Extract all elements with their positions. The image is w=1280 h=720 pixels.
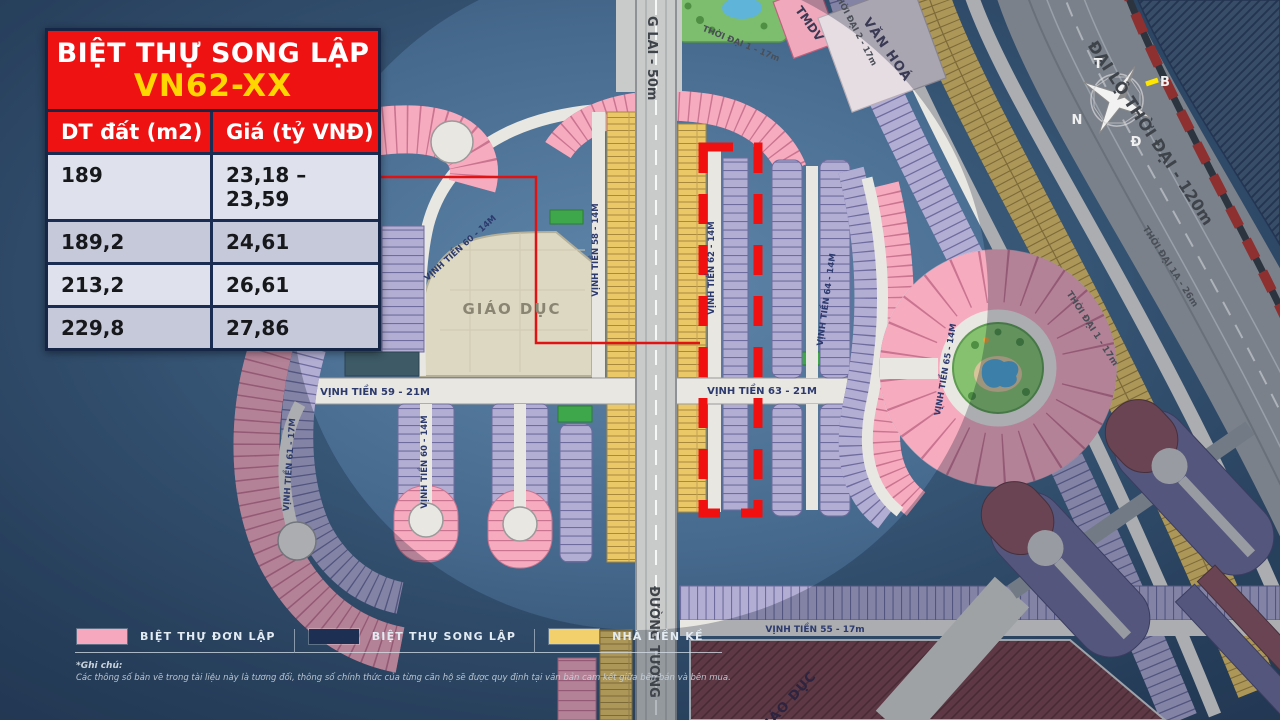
street-vt65-entrance — [880, 358, 938, 379]
footnote-title: *Ghi chú: — [76, 661, 731, 671]
area-value: 213,2 — [48, 265, 213, 305]
price-value: 26,61 — [213, 265, 378, 305]
utility-block — [345, 352, 419, 376]
area-value: 229,8 — [48, 308, 213, 348]
legend-swatch-townhouse — [549, 629, 599, 644]
label-education: GIÁO DỤC — [462, 299, 561, 318]
col-header-price: Giá (tỷ VNĐ) — [213, 112, 378, 152]
area-value: 189 — [48, 155, 213, 219]
price-value: 23,18 – 23,59 — [213, 155, 378, 219]
label-future-road-top: G LAI - 50m — [644, 16, 659, 100]
table-row: 213,2 26,61 — [48, 265, 378, 308]
masterplan-screenshot: GIÁO DỤC GIÁO DỤC VĂN HOÁ TMDV VỊNH TIỀN… — [0, 0, 1280, 720]
compass-label-b: B — [1160, 75, 1170, 90]
vt62-lot-strip — [723, 158, 748, 378]
culdesac-vt61-loop — [431, 121, 473, 163]
price-panel-title: BIỆT THỰ SONG LẬP VN62-XX — [48, 31, 378, 112]
compass-label-d: Đ — [1131, 135, 1142, 150]
legend-label: BIỆT THỰ SONG LẬP — [372, 630, 516, 643]
legend-item-villa-single: BIỆT THỰ ĐƠN LẬP — [75, 629, 294, 653]
price-panel: BIỆT THỰ SONG LẬP VN62-XX DT đất (m2) Gi… — [45, 28, 381, 351]
table-row: 189 23,18 – 23,59 — [48, 155, 378, 222]
col-header-area: DT đất (m2) — [48, 112, 213, 152]
townhouse-strip-left — [607, 112, 638, 378]
legend-label: NHÀ LIỀN KỀ — [612, 630, 704, 643]
label-road-vt59: VỊNH TIỀN 59 - 21M — [320, 384, 430, 398]
price-table-header: DT đất (m2) Giá (tỷ VNĐ) — [48, 112, 378, 155]
label-road-vt63: VỊNH TIỀN 63 - 21M — [707, 383, 817, 397]
compass-label-n: N — [1072, 113, 1083, 128]
legend-item-townhouse: NHÀ LIỀN KỀ — [534, 629, 722, 653]
product-code: VN62-XX — [52, 69, 374, 103]
footnote: *Ghi chú: Các thông số bản vẽ trong tài … — [76, 661, 731, 683]
legend-item-villa-semi: BIỆT THỰ SONG LẬP — [294, 629, 534, 653]
compass-label-t: T — [1094, 57, 1103, 72]
area-value: 189,2 — [48, 222, 213, 262]
price-value: 24,61 — [213, 222, 378, 262]
legend-swatch-villa-semi — [309, 629, 359, 644]
legend-swatch-villa-single — [77, 629, 127, 644]
footnote-text: Các thông số bản vẽ trong tài liệu này l… — [76, 673, 731, 683]
legend: BIỆT THỰ ĐƠN LẬP BIỆT THỰ SONG LẬP NHÀ L… — [75, 629, 722, 653]
table-row: 189,2 24,61 — [48, 222, 378, 265]
price-value: 27,86 — [213, 308, 378, 348]
product-type-title: BIỆT THỰ SONG LẬP — [52, 38, 374, 69]
table-row: 229,8 27,86 — [48, 308, 378, 348]
legend-label: BIỆT THỰ ĐƠN LẬP — [140, 630, 276, 643]
